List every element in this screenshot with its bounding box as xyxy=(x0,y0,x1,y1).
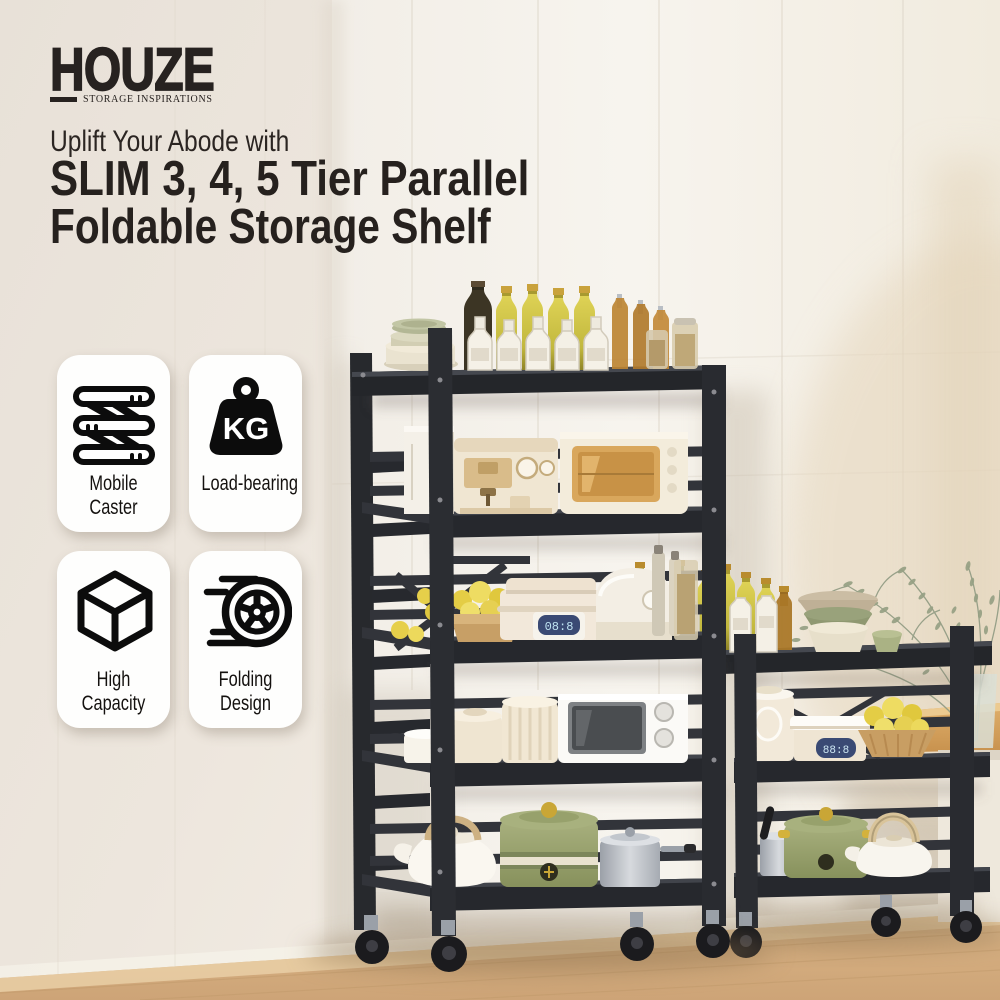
svg-text:88:8: 88:8 xyxy=(823,745,849,757)
svg-text:KG: KG xyxy=(223,411,270,446)
svg-text:08:8: 08:8 xyxy=(545,620,574,634)
